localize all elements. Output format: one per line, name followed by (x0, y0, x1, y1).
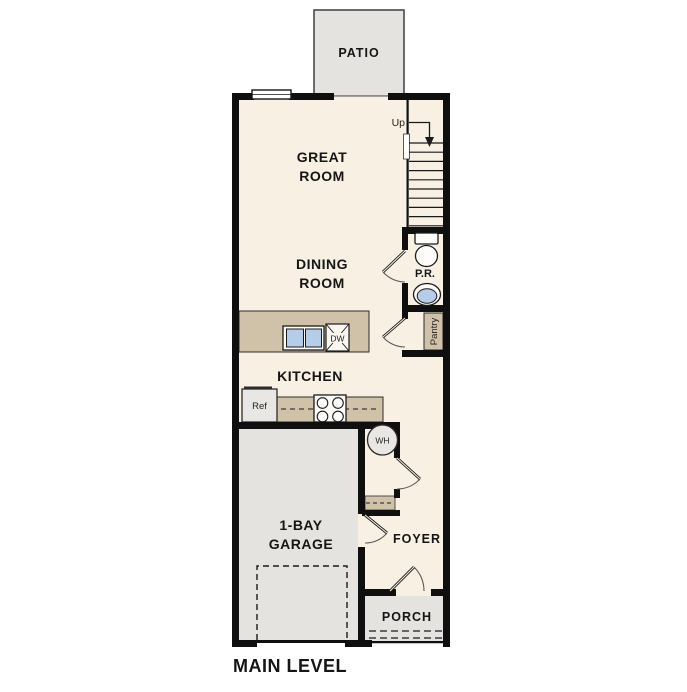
dishwasher-icon: DW (326, 324, 349, 351)
svg-text:GREAT: GREAT (297, 149, 347, 165)
bathroom-sink-icon (414, 284, 441, 306)
sink-basin-right (306, 329, 322, 347)
kitchen-label: KITCHEN (277, 368, 343, 384)
sink-basin-left (287, 329, 304, 347)
floor-plan-page: DW Ref Pantry (0, 0, 687, 687)
up-label: Up (392, 117, 406, 129)
svg-text:ROOM: ROOM (299, 168, 345, 184)
pantry-shelf: Pantry (424, 313, 443, 350)
svg-text:DINING: DINING (296, 256, 348, 272)
svg-text:ROOM: ROOM (299, 275, 345, 291)
powder-room-label: P.R. (415, 268, 435, 280)
patio-door-opening (334, 95, 388, 97)
refrigerator-label: Ref (252, 401, 267, 412)
level-title: MAIN LEVEL (233, 656, 347, 676)
porch-label: PORCH (382, 610, 432, 624)
window-icon (252, 90, 291, 99)
patio-label: PATIO (338, 46, 379, 60)
range-icon (314, 395, 346, 422)
dishwasher-label: DW (330, 334, 344, 344)
foyer-label: FOYER (393, 532, 441, 546)
water-heater-label: WH (375, 436, 389, 446)
svg-text:1-BAY: 1-BAY (279, 517, 322, 533)
pantry-label: Pantry (429, 318, 440, 346)
svg-text:GARAGE: GARAGE (269, 536, 333, 552)
coat-shelf (365, 496, 395, 510)
water-heater-icon: WH (368, 425, 398, 455)
toilet-icon (415, 233, 438, 267)
floor-plan-drawing: DW Ref Pantry (0, 0, 687, 687)
refrigerator-icon: Ref (242, 388, 277, 423)
